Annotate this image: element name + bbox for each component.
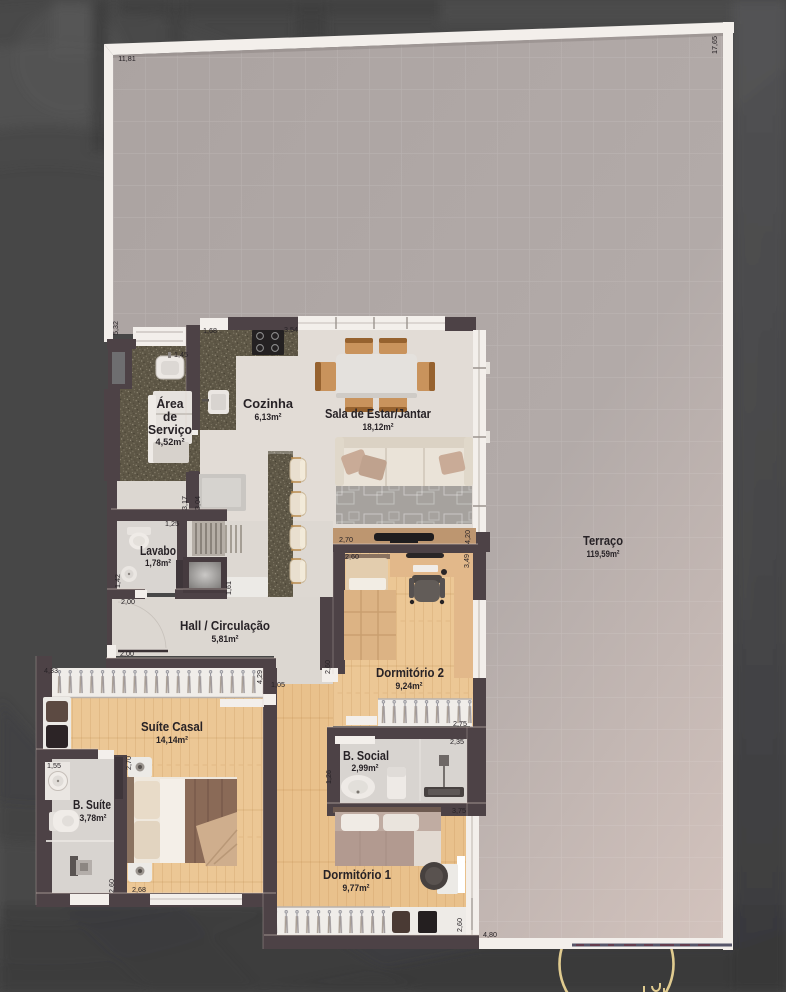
svg-text:2,75: 2,75 <box>453 719 467 728</box>
svg-text:11,81: 11,81 <box>118 54 135 63</box>
svg-text:2,35: 2,35 <box>450 737 464 746</box>
svg-text:1,05: 1,05 <box>271 680 285 689</box>
svg-text:Dormitório 1: Dormitório 1 <box>323 867 391 882</box>
svg-text:3,49: 3,49 <box>462 554 471 568</box>
svg-text:de: de <box>163 410 177 424</box>
svg-text:6,13m²: 6,13m² <box>255 412 282 423</box>
svg-text:3,54: 3,54 <box>284 325 298 334</box>
svg-text:1,42: 1,42 <box>113 574 122 588</box>
svg-text:2,60: 2,60 <box>455 918 464 932</box>
svg-text:9,24m²: 9,24m² <box>396 681 423 692</box>
svg-text:3,78m²: 3,78m² <box>80 813 107 824</box>
svg-text:Lavabo: Lavabo <box>140 543 176 558</box>
svg-text:14,14m²: 14,14m² <box>156 735 188 746</box>
svg-text:3,17: 3,17 <box>180 496 189 510</box>
svg-text:3,75: 3,75 <box>452 806 466 815</box>
svg-text:1,55: 1,55 <box>47 761 61 770</box>
svg-text:2,00: 2,00 <box>120 649 134 658</box>
svg-text:2,00: 2,00 <box>121 597 135 606</box>
svg-text:17,65: 17,65 <box>710 36 719 54</box>
svg-text:4,29: 4,29 <box>255 670 264 684</box>
svg-text:Área: Área <box>157 396 185 411</box>
svg-text:Serviço: Serviço <box>148 423 192 437</box>
svg-text:3,04: 3,04 <box>193 496 202 510</box>
svg-text:Terraço: Terraço <box>583 533 623 548</box>
svg-text:9,77m²: 9,77m² <box>343 883 370 894</box>
svg-text:4,52m²: 4,52m² <box>156 437 185 448</box>
svg-text:2,60: 2,60 <box>107 879 116 893</box>
svg-text:2,99m²: 2,99m² <box>352 763 379 774</box>
svg-text:1,25: 1,25 <box>165 519 179 528</box>
svg-text:1,61: 1,61 <box>224 581 233 595</box>
svg-text:1,45: 1,45 <box>174 350 188 359</box>
svg-text:B. Suíte: B. Suíte <box>73 797 111 812</box>
svg-text:Hall / Circulação: Hall / Circulação <box>180 618 270 633</box>
svg-text:Suíte Casal: Suíte Casal <box>141 719 203 734</box>
svg-text:1,68: 1,68 <box>203 326 217 335</box>
svg-text:4,80: 4,80 <box>483 930 497 939</box>
svg-text:Dormitório 2: Dormitório 2 <box>376 665 444 680</box>
svg-text:1,26: 1,26 <box>324 770 333 784</box>
svg-text:2,70: 2,70 <box>339 535 353 544</box>
svg-text:Sala de Estar/Jantar: Sala de Estar/Jantar <box>325 406 431 421</box>
svg-text:Cozinha: Cozinha <box>243 396 294 411</box>
svg-text:2,60: 2,60 <box>323 660 332 674</box>
svg-text:B. Social: B. Social <box>343 748 389 763</box>
svg-text:4,20: 4,20 <box>463 530 472 544</box>
svg-text:18,12m²: 18,12m² <box>363 422 394 433</box>
svg-text:1,78m²: 1,78m² <box>145 558 171 569</box>
svg-text:5,32: 5,32 <box>111 321 120 335</box>
svg-text:119,59m²: 119,59m² <box>587 549 620 560</box>
svg-text:2,70: 2,70 <box>124 756 133 770</box>
svg-text:2,68: 2,68 <box>132 885 146 894</box>
svg-text:5,81m²: 5,81m² <box>212 634 239 645</box>
svg-text:2,60: 2,60 <box>345 552 359 561</box>
svg-text:4,33: 4,33 <box>44 666 58 675</box>
